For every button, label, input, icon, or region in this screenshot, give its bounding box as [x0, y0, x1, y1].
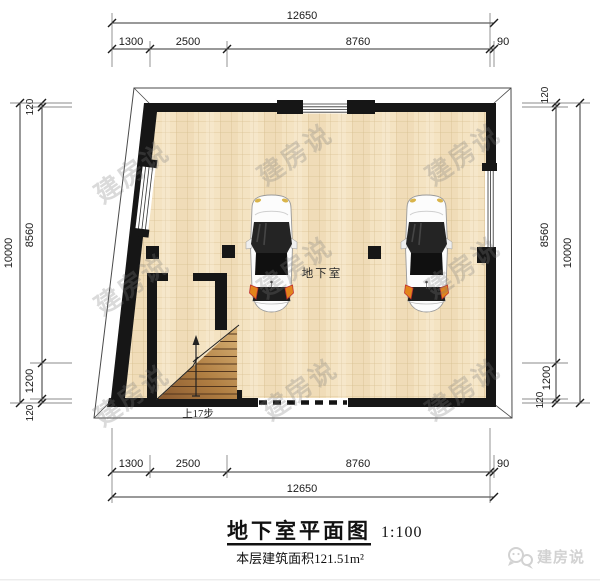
chat-bubbles-icon: [508, 548, 533, 569]
dim-bottom-seg-1: 1300: [119, 458, 143, 470]
brand-logo: 建房说: [508, 548, 585, 569]
dim-right-seg-1: 120: [540, 86, 551, 103]
dim-left-seg-3: 1200: [24, 369, 36, 393]
dim-bottom-seg-3: 8760: [346, 458, 370, 470]
stairs-label: 上17步: [182, 408, 214, 420]
dim-left-seg-2: 8560: [24, 223, 36, 247]
dim-right-seg-4: 120: [535, 391, 546, 408]
left-dimensions: 10000 120 8560 1200 120: [3, 98, 72, 421]
title-underline: [227, 543, 371, 546]
floor-plan-canvas: 上17步 地下室 建房说 建房说 建房说 建房说 建房说 建房说 建房说 建房说…: [0, 0, 600, 583]
dim-top-seg-3: 8760: [346, 36, 370, 48]
dim-right-seg-2: 8560: [539, 223, 551, 247]
dim-left-seg-4: 120: [25, 404, 36, 421]
dim-top-total: 12650: [287, 10, 318, 22]
brand-logo-text: 建房说: [537, 548, 585, 566]
bottom-dimensions: 1300 2500 8760 90 12650: [108, 428, 509, 503]
dim-bottom-seg-4: 90: [497, 458, 509, 470]
dim-top-seg-1: 1300: [119, 36, 143, 48]
right-dimensions: 120 8560 1200 120 10000: [522, 86, 590, 408]
title-block: 地下室平面图 1:100 本层建筑面积121.51m²: [227, 519, 422, 566]
dim-right-total: 10000: [562, 238, 574, 269]
dim-bottom-seg-2: 2500: [176, 458, 200, 470]
page-bottom-divider: [0, 579, 600, 581]
dim-top-seg-4: 90: [497, 36, 509, 48]
floor-plan-page: 上17步 地下室 建房说 建房说 建房说 建房说 建房说 建房说 建房说 建房说…: [0, 0, 600, 583]
area-note: 本层建筑面积121.51m²: [236, 551, 364, 566]
watermarks: 建房说 建房说 建房说 建房说 建房说 建房说 建房说 建房说 建房说: [89, 119, 505, 432]
top-dimensions: 12650 1300 2500 8760 90: [108, 10, 509, 67]
page-title: 地下室平面图: [227, 519, 371, 543]
dim-bottom-total: 12650: [287, 483, 318, 495]
dim-top-seg-2: 2500: [176, 36, 200, 48]
dim-left-total: 10000: [3, 238, 15, 269]
dim-right-seg-3: 1200: [541, 366, 553, 390]
window-top: [277, 100, 375, 114]
drawing-scale: 1:100: [381, 524, 422, 541]
